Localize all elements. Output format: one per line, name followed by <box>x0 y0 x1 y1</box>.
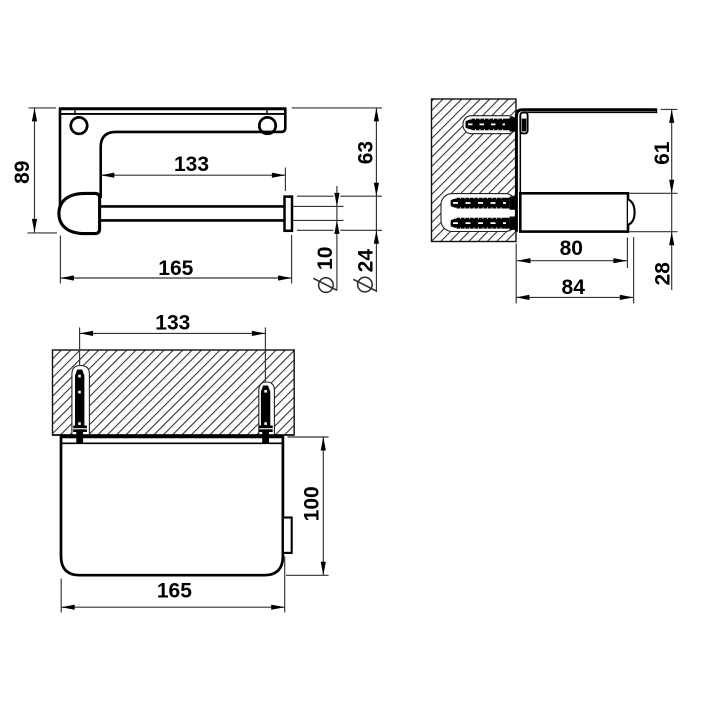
svg-text:165: 165 <box>158 257 193 280</box>
svg-text:63: 63 <box>355 141 378 164</box>
svg-text:89: 89 <box>11 161 34 184</box>
svg-text:84: 84 <box>562 276 586 299</box>
svg-text:80: 80 <box>560 237 583 260</box>
svg-text:28: 28 <box>651 262 674 286</box>
svg-text:165: 165 <box>157 580 192 603</box>
svg-text:24: 24 <box>355 249 378 273</box>
svg-text:61: 61 <box>651 141 674 165</box>
svg-text:10: 10 <box>314 247 337 270</box>
svg-text:100: 100 <box>300 486 323 521</box>
svg-text:133: 133 <box>155 312 190 335</box>
svg-text:133: 133 <box>174 153 209 176</box>
